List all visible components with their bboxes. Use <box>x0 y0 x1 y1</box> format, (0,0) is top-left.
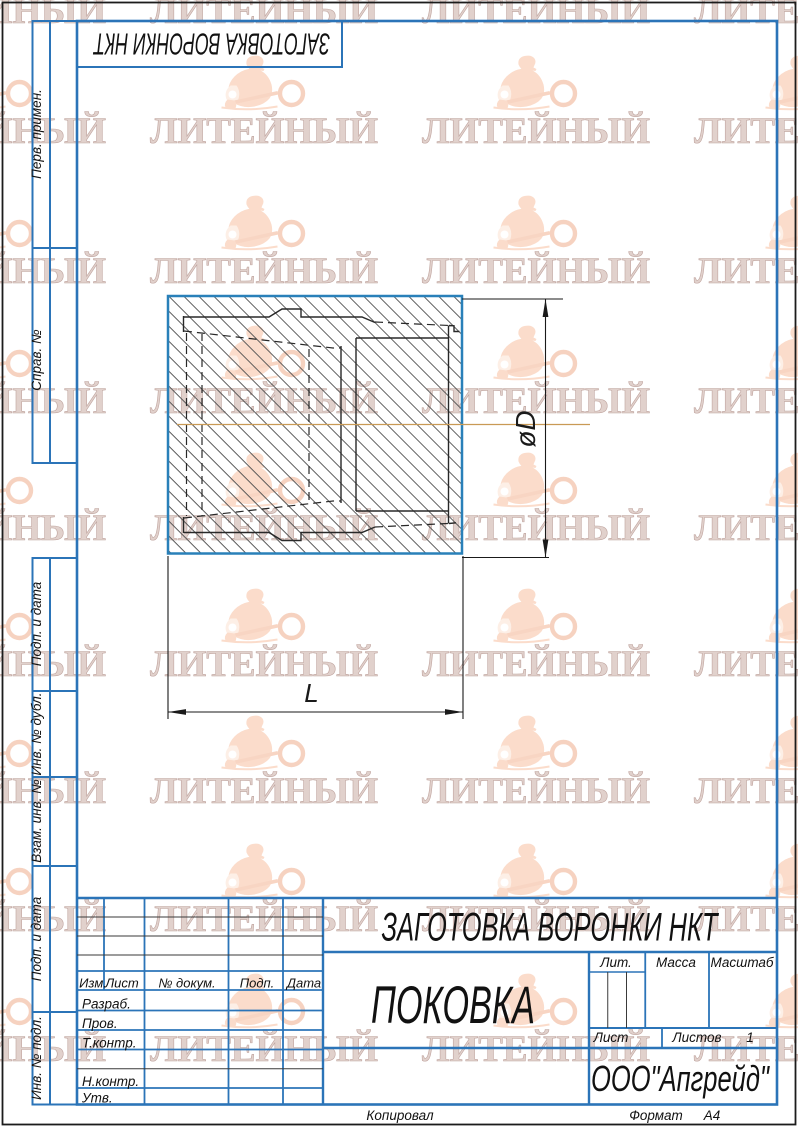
svg-text:Инв. № дубл.: Инв. № дубл. <box>29 692 44 775</box>
svg-text:ЛИТЕЙНЫЙ: ЛИТЕЙНЫЙ <box>694 643 798 685</box>
svg-text:ЛИТЕЙНЫЙ: ЛИТЕЙНЫЙ <box>694 0 798 32</box>
svg-text:ЛИТЕЙНЫЙ: ЛИТЕЙНЫЙ <box>150 110 378 152</box>
svg-text:ЛИТЕЙНЫЙ: ЛИТЕЙНЫЙ <box>0 898 106 940</box>
svg-text:ЛИТЕЙНЫЙ: ЛИТЕЙНЫЙ <box>0 0 106 32</box>
svg-text:ЛИТЕЙНЫЙ: ЛИТЕЙНЫЙ <box>150 770 378 812</box>
svg-text:Масштаб: Масштаб <box>710 955 773 970</box>
svg-text:ЛИТЕЙНЫЙ: ЛИТЕЙНЫЙ <box>422 0 650 32</box>
svg-text:Разраб.: Разраб. <box>82 997 131 1012</box>
svg-text:А4: А4 <box>703 1108 721 1123</box>
svg-text:Подп. и дата: Подп. и дата <box>29 581 44 666</box>
svg-text:Изм.: Изм. <box>79 976 107 991</box>
svg-text:ЛИТЕЙНЫЙ: ЛИТЕЙНЫЙ <box>694 110 798 152</box>
svg-text:Т.контр.: Т.контр. <box>82 1036 136 1051</box>
svg-text:ЛИТЕЙНЫЙ: ЛИТЕЙНЫЙ <box>0 380 106 422</box>
svg-text:ЛИТЕЙНЫЙ: ЛИТЕЙНЫЙ <box>694 770 798 812</box>
svg-text:ЛИТЕЙНЫЙ: ЛИТЕЙНЫЙ <box>422 770 650 812</box>
svg-text:ЛИТЕЙНЫЙ: ЛИТЕЙНЫЙ <box>0 507 106 549</box>
svg-text:ЛИТЕЙНЫЙ: ЛИТЕЙНЫЙ <box>694 380 798 422</box>
svg-text:ЛИТЕЙНЫЙ: ЛИТЕЙНЫЙ <box>422 110 650 152</box>
svg-text:Взам. инв. №: Взам. инв. № <box>29 779 44 863</box>
svg-text:Копировал: Копировал <box>366 1108 434 1123</box>
svg-text:Масса: Масса <box>656 955 696 970</box>
svg-text:ЛИТЕЙНЫЙ: ЛИТЕЙНЫЙ <box>422 250 650 292</box>
svg-text:1: 1 <box>746 1030 754 1045</box>
svg-text:Подп. и дата: Подп. и дата <box>29 896 44 981</box>
svg-text:№ докум.: № докум. <box>158 976 215 991</box>
svg-text:ЛИТЕЙНЫЙ: ЛИТЕЙНЫЙ <box>0 643 106 685</box>
svg-text:ООО"Апгрейд": ООО"Апгрейд" <box>591 1058 771 1099</box>
svg-text:ЛИТЕЙНЫЙ: ЛИТЕЙНЫЙ <box>694 507 798 549</box>
svg-text:Формат: Формат <box>629 1108 683 1123</box>
svg-text:L: L <box>304 678 318 708</box>
svg-text:Пров.: Пров. <box>82 1016 118 1031</box>
svg-text:ЛИТЕЙНЫЙ: ЛИТЕЙНЫЙ <box>150 250 378 292</box>
svg-text:Н.контр.: Н.контр. <box>82 1074 139 1089</box>
svg-text:ЗАГОТОВКА ВОРОНКИ НКТ: ЗАГОТОВКА ВОРОНКИ НКТ <box>93 27 330 62</box>
svg-text:Утв.: Утв. <box>81 1091 113 1106</box>
svg-text:Листов: Листов <box>671 1030 721 1045</box>
svg-text:Лист: Лист <box>104 976 139 991</box>
svg-text:ПОКОВКА: ПОКОВКА <box>371 976 535 1035</box>
svg-text:ЗАГОТОВКА ВОРОНКИ НКТ: ЗАГОТОВКА ВОРОНКИ НКТ <box>382 906 720 950</box>
svg-text:Инв. № подл.: Инв. № подл. <box>29 1016 44 1100</box>
svg-text:Дата: Дата <box>285 976 321 991</box>
svg-text:ЛИТЕЙНЫЙ: ЛИТЕЙНЫЙ <box>150 643 378 685</box>
svg-text:Подп.: Подп. <box>240 976 275 991</box>
svg-text:Лит.: Лит. <box>599 955 632 970</box>
svg-text:Справ. №: Справ. № <box>29 329 44 391</box>
svg-text:ЛИТЕЙНЫЙ: ЛИТЕЙНЫЙ <box>150 898 378 940</box>
svg-text:Перв. примен.: Перв. примен. <box>29 89 44 179</box>
svg-text:ЛИТЕЙНЫЙ: ЛИТЕЙНЫЙ <box>694 250 798 292</box>
svg-text:Лист: Лист <box>593 1030 629 1045</box>
svg-text:ЛИТЕЙНЫЙ: ЛИТЕЙНЫЙ <box>0 250 106 292</box>
svg-text:ЛИТЕЙНЫЙ: ЛИТЕЙНЫЙ <box>422 643 650 685</box>
svg-text:ЛИТЕЙНЫЙ: ЛИТЕЙНЫЙ <box>0 110 106 152</box>
svg-text:øD: øD <box>510 410 541 447</box>
